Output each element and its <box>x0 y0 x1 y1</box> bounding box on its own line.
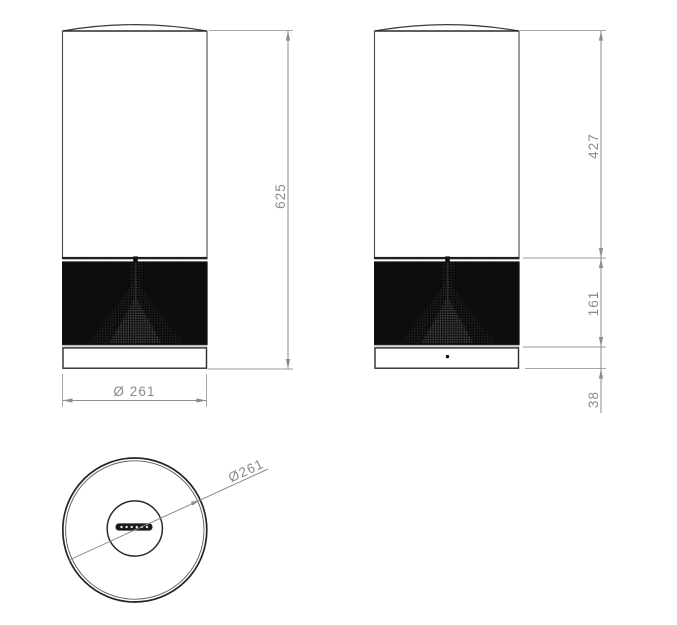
dimension-front-diameter: Ø 261 <box>63 374 207 407</box>
dim-label-grille-height: 161 <box>586 291 601 317</box>
arrow-up-icon <box>599 258 603 268</box>
arrow-right-icon <box>197 398 207 402</box>
arrow-down-icon <box>286 359 290 369</box>
arrow-down-icon <box>599 337 603 347</box>
speaker-dimension-drawing: 625 Ø 261 427 161 38 Ø261 <box>0 0 677 625</box>
arrow-left-icon <box>63 398 73 402</box>
side-view <box>374 25 520 369</box>
dim-label-top-diameter: Ø261 <box>226 456 266 485</box>
dim-label-total-height: 625 <box>273 183 288 209</box>
dim-label-base-height: 38 <box>586 391 601 408</box>
dimension-stack-side: 427 161 38 <box>520 31 607 413</box>
arrow-up-icon <box>286 31 290 41</box>
dimension-total-height: 625 <box>208 31 293 369</box>
arrow-up-icon <box>599 31 603 41</box>
dim-label-upper-body-height: 427 <box>586 133 601 159</box>
arrow-down-icon <box>599 248 603 258</box>
front-view <box>62 25 208 369</box>
base-power-dot <box>446 355 449 358</box>
technical-drawing-page: 625 Ø 261 427 161 38 Ø261 <box>0 0 677 625</box>
dim-label-front-diameter: Ø 261 <box>113 384 155 399</box>
arrow-up-icon <box>599 369 603 379</box>
